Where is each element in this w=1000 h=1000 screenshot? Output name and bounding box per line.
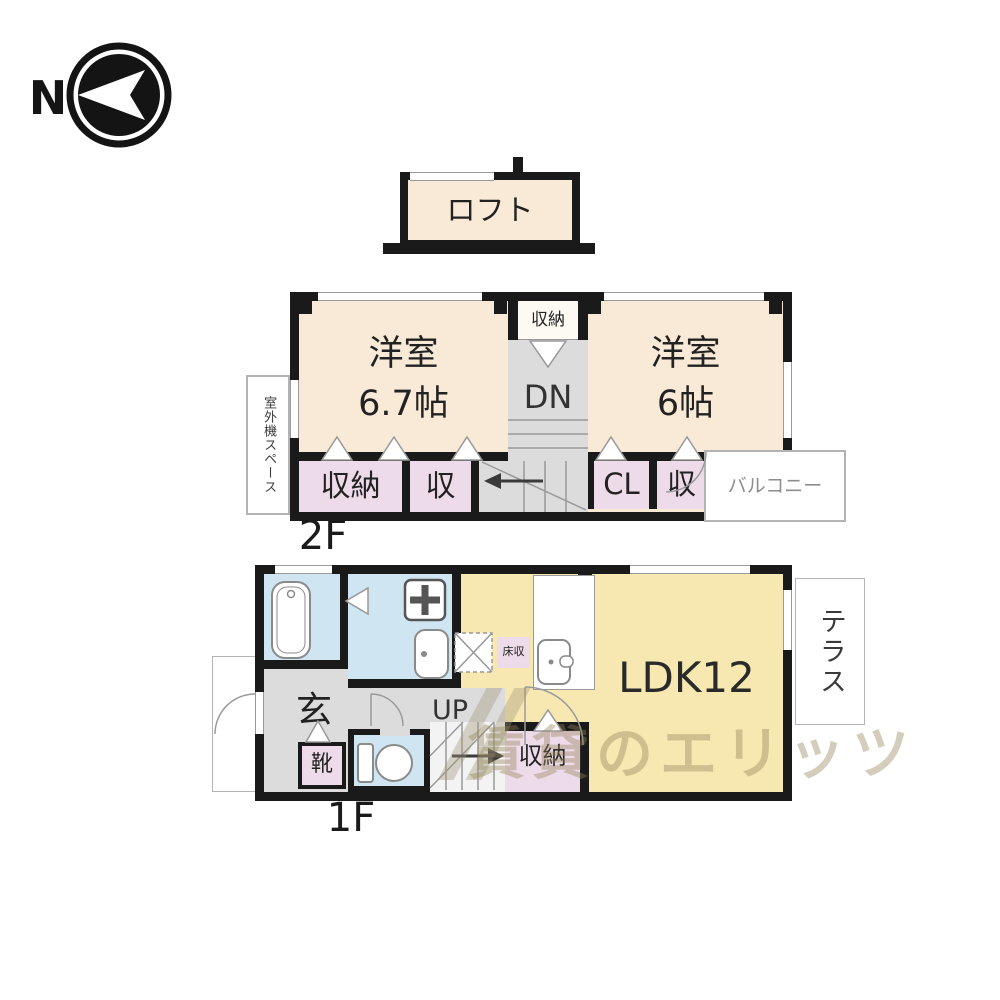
floor1-washroom <box>348 574 452 679</box>
floor2-balcony: バルコニー <box>704 450 846 522</box>
floor2-west-room: 洋室 6.7帖 <box>299 329 508 429</box>
floor2-top-closet-label: 収納 <box>518 303 578 337</box>
window <box>318 292 482 301</box>
floor2-closet-b-label: 収 <box>410 463 471 510</box>
floor2-east-room: 洋室 6帖 <box>588 329 783 429</box>
window <box>275 565 332 574</box>
window <box>783 362 792 438</box>
wall-stub <box>578 301 588 340</box>
floor2-closet-c-label: 収 <box>657 463 706 507</box>
floor1-terrace: テラス <box>795 578 865 725</box>
wall <box>588 452 704 461</box>
kitchen-counter <box>533 575 595 690</box>
pillar <box>299 301 312 314</box>
window <box>290 380 299 438</box>
floor1-bathroom <box>264 574 340 660</box>
floor1-ldk-label: LDK12 <box>594 652 779 704</box>
floorplan-page: N ロフト 収納 DN 収納 収 CL 収 洋室 <box>0 0 1000 1000</box>
north-compass-icon <box>64 40 174 150</box>
window <box>630 565 750 574</box>
wall <box>471 461 479 512</box>
wall <box>649 461 657 509</box>
pillar <box>769 301 782 314</box>
wall <box>348 679 460 688</box>
floor1-shoes-label: 靴 <box>302 746 342 785</box>
floor2-stairs-lower <box>479 461 588 512</box>
window <box>783 590 792 650</box>
pillar <box>494 301 507 314</box>
wall <box>299 452 508 461</box>
room-size: 6帖 <box>588 379 783 429</box>
wall <box>452 574 461 688</box>
loft-label: ロフト <box>400 180 580 242</box>
toilet-door-gap <box>380 729 410 736</box>
floor2-closet-cl-label: CL <box>594 463 649 507</box>
wall <box>340 574 348 660</box>
floor1-entrance-label: 玄 <box>290 688 338 734</box>
wall <box>402 461 410 512</box>
wall-stub <box>508 301 518 340</box>
entrance-door-gap <box>255 692 264 734</box>
loft-window <box>410 172 494 181</box>
floor2-label: 2F <box>288 514 358 558</box>
room-size: 6.7帖 <box>299 379 508 429</box>
floor1-label: 1F <box>316 796 386 840</box>
room-name: 洋室 <box>588 329 783 379</box>
outdoor-unit-space: 室外機スペース <box>246 375 290 515</box>
north-label: N <box>26 74 70 122</box>
watermark-text: 賃貸のエリッツ <box>468 708 916 790</box>
floor1-porch <box>212 656 256 792</box>
room-name: 洋室 <box>299 329 508 379</box>
stairs-down-label: DN <box>508 377 588 419</box>
loft-wall-stub <box>513 157 523 176</box>
pillar <box>588 301 601 314</box>
floor-storage-label: 床収 <box>497 637 530 668</box>
wall <box>264 660 348 669</box>
floor1-toilet-room <box>348 729 430 792</box>
window <box>604 292 764 301</box>
floor2-closet-a-label: 収納 <box>299 463 402 510</box>
